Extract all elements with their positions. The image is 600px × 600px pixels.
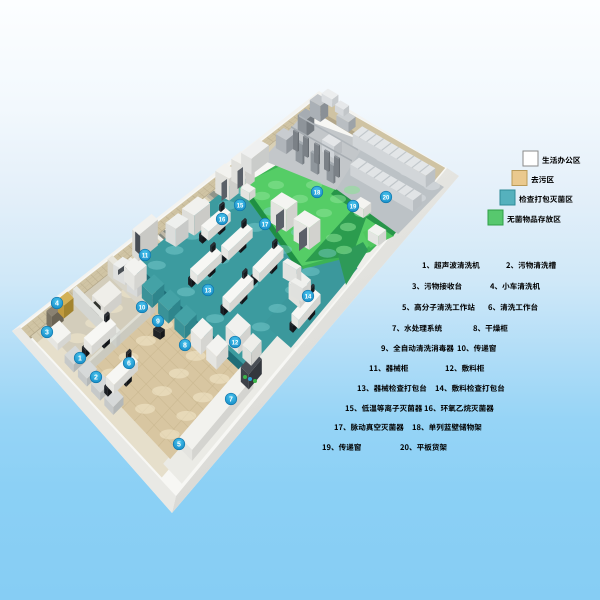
svg-text:13: 13	[205, 288, 212, 294]
svg-text:17: 17	[262, 222, 269, 228]
svg-text:3: 3	[45, 329, 49, 336]
svg-text:20: 20	[383, 195, 390, 201]
svg-text:19: 19	[350, 204, 357, 210]
svg-text:2: 2	[94, 374, 98, 381]
svg-text:16: 16	[219, 217, 226, 223]
svg-text:4: 4	[55, 300, 59, 307]
svg-text:12: 12	[232, 340, 239, 346]
svg-text:15: 15	[237, 203, 244, 209]
svg-text:11: 11	[142, 253, 149, 259]
svg-text:8: 8	[183, 342, 187, 349]
svg-text:5: 5	[177, 441, 181, 448]
svg-text:14: 14	[305, 294, 312, 300]
svg-text:18: 18	[314, 190, 321, 196]
svg-text:1: 1	[78, 355, 82, 362]
svg-text:9: 9	[156, 318, 160, 325]
svg-text:7: 7	[229, 396, 233, 403]
svg-text:6: 6	[127, 360, 131, 367]
svg-text:10: 10	[139, 305, 146, 311]
